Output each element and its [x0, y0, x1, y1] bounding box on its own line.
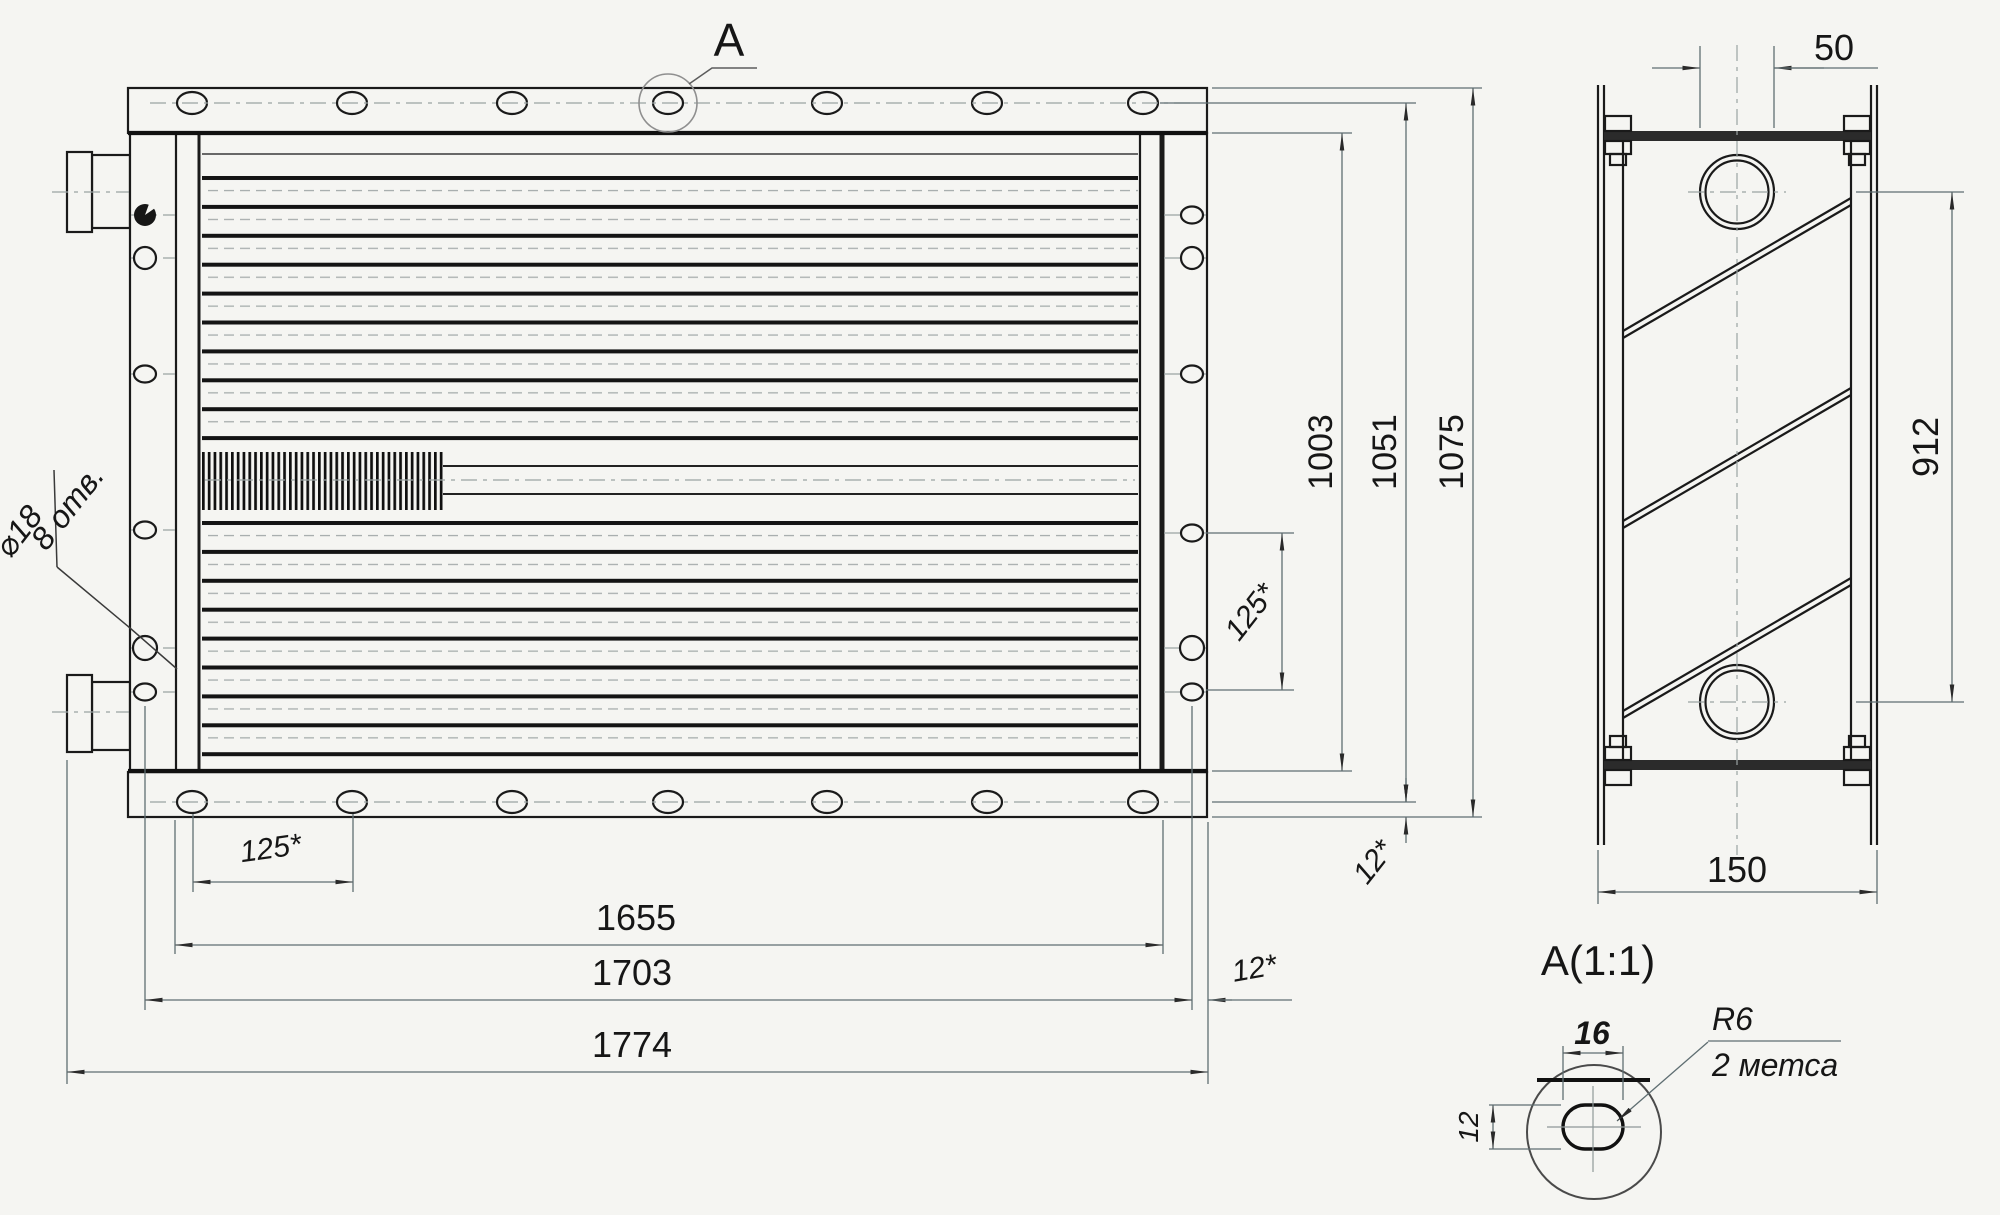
dim-body-width: 1655	[596, 897, 676, 938]
dim-places-note: 2 метса	[1711, 1047, 1838, 1083]
fin-rows-lower	[202, 521, 1138, 758]
dim-holes-height: 1051	[1366, 414, 1404, 490]
dim-depth: 150	[1707, 849, 1767, 890]
drawing-sheet: A ⌀18 8 отв. 1003 1051 1075 12* 125*	[0, 0, 2000, 1215]
dim-side-hole-pitch: 125*	[1219, 577, 1284, 647]
dim-overall-width: 1774	[592, 1024, 672, 1065]
hole-note-count: 8 отв.	[23, 458, 111, 556]
dim-bolt-pitch: 125*	[238, 828, 305, 869]
fin-rows-upper	[202, 176, 1138, 442]
section-label: A	[714, 14, 745, 66]
dim-corner-radius: R6	[1712, 1001, 1753, 1037]
dim-slot-width: 16	[1574, 1015, 1610, 1051]
dim-port-pitch: 912	[1905, 417, 1946, 477]
dim-slot-height: 12	[1453, 1111, 1484, 1143]
dim-flange-lip-bottom: 12*	[1347, 833, 1402, 890]
dim-body-height: 1003	[1302, 414, 1340, 490]
dim-flange-width: 1703	[592, 952, 672, 993]
side-view: 50 912 150	[1598, 27, 1964, 904]
dim-flange-lip-right: 12*	[1229, 948, 1280, 989]
detail-view: A(1:1) 16 12 R6 2 метса	[1453, 937, 1841, 1199]
detail-label: A(1:1)	[1541, 937, 1655, 984]
dim-port-width: 50	[1814, 27, 1854, 68]
finned-tube-corrugation	[202, 452, 444, 510]
front-view: A ⌀18 8 отв.	[0, 14, 1207, 817]
dim-overall-height: 1075	[1433, 414, 1471, 490]
technical-drawing: A ⌀18 8 отв. 1003 1051 1075 12* 125*	[0, 0, 2000, 1215]
